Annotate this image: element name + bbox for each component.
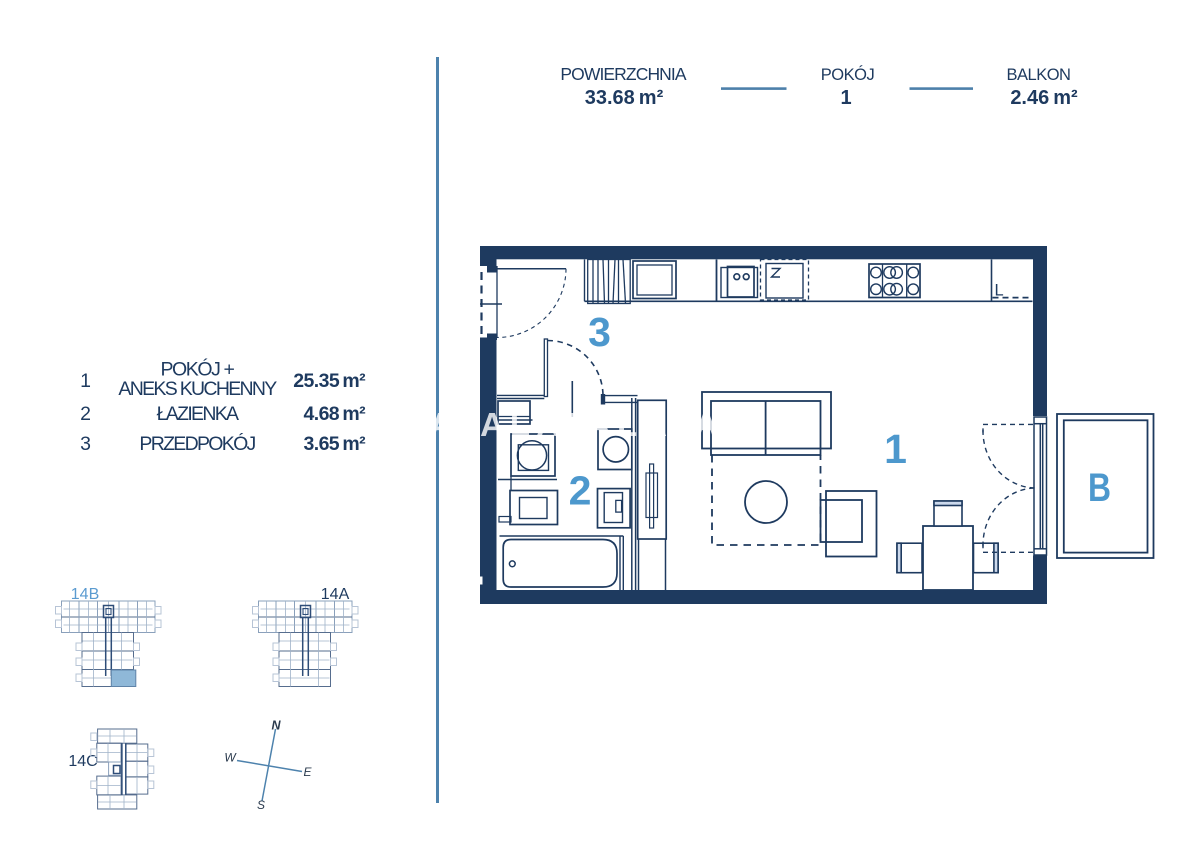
svg-text:2: 2 bbox=[80, 403, 91, 425]
svg-text:POKÓJ: POKÓJ bbox=[821, 65, 875, 84]
svg-text:1: 1 bbox=[80, 370, 91, 392]
svg-text:3.65 m²: 3.65 m² bbox=[304, 433, 367, 455]
svg-text:3: 3 bbox=[588, 309, 611, 355]
svg-text:ŁAZIENKA: ŁAZIENKA bbox=[157, 403, 239, 425]
svg-text:14A: 14A bbox=[321, 586, 350, 603]
svg-text:B: B bbox=[1088, 466, 1111, 510]
svg-text:3: 3 bbox=[80, 433, 91, 455]
svg-text:BALKON: BALKON bbox=[1007, 66, 1071, 84]
svg-text:S: S bbox=[257, 798, 265, 812]
svg-text:PRZEDPOKÓJ: PRZEDPOKÓJ bbox=[139, 432, 255, 455]
svg-text:14C: 14C bbox=[68, 753, 97, 770]
svg-text:L: L bbox=[995, 282, 1004, 300]
svg-text:33.68 m²: 33.68 m² bbox=[585, 87, 664, 109]
svg-text:4.68 m²: 4.68 m² bbox=[304, 403, 367, 425]
svg-text:1: 1 bbox=[884, 426, 907, 472]
svg-text:25.35 m²: 25.35 m² bbox=[293, 370, 366, 392]
svg-text:2.46 m²: 2.46 m² bbox=[1010, 87, 1078, 109]
svg-text:2: 2 bbox=[569, 468, 592, 514]
svg-text:POWIERZCHNIA: POWIERZCHNIA bbox=[560, 64, 687, 84]
svg-text:ANEKS KUCHENNY: ANEKS KUCHENNY bbox=[118, 378, 277, 400]
svg-text:14B: 14B bbox=[71, 586, 99, 603]
svg-text:N: N bbox=[271, 719, 281, 733]
svg-text:1: 1 bbox=[840, 87, 851, 109]
svg-text:ATALATALATA: ATALATALATA bbox=[429, 406, 724, 443]
svg-text:E: E bbox=[303, 765, 312, 779]
svg-text:W: W bbox=[224, 751, 237, 765]
